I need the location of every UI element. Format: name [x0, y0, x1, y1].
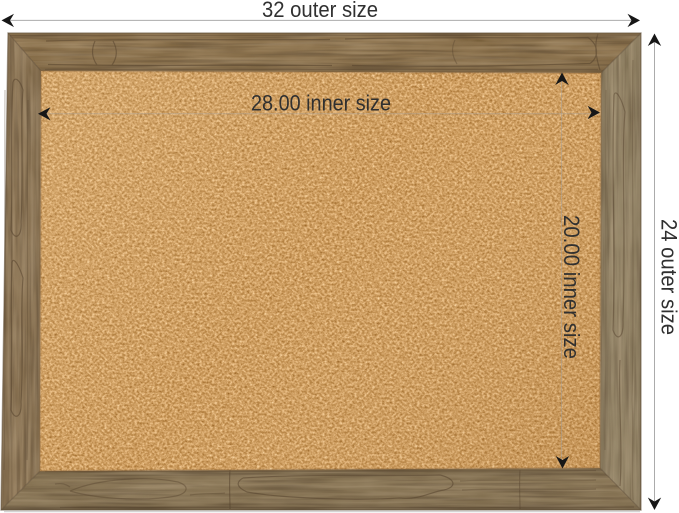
- svg-text:24 outer size: 24 outer size: [657, 219, 679, 335]
- svg-text:28.00 inner size: 28.00 inner size: [251, 91, 391, 116]
- svg-text:20.00 inner size: 20.00 inner size: [559, 215, 584, 359]
- svg-text:32 outer size: 32 outer size: [262, 0, 378, 22]
